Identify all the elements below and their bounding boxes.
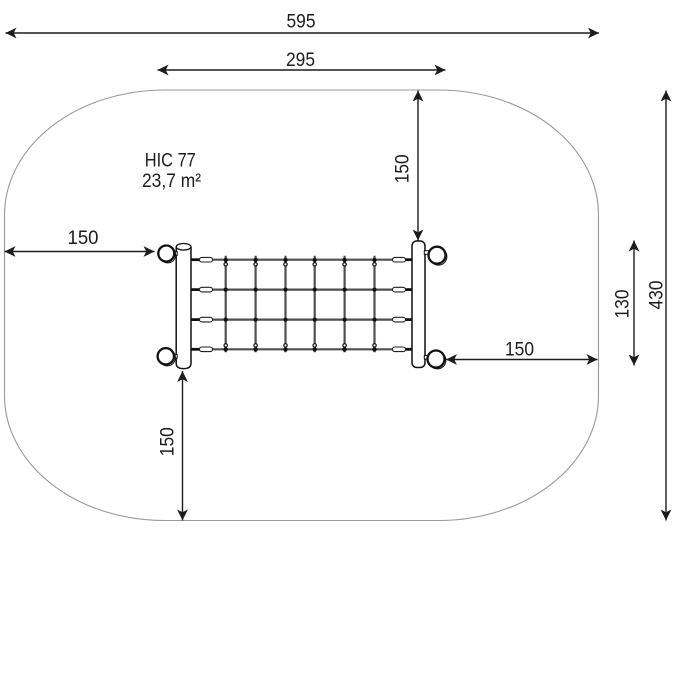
svg-text:595: 595 <box>287 11 316 32</box>
svg-text:295: 295 <box>286 50 315 71</box>
svg-text:150: 150 <box>392 154 413 183</box>
svg-text:150: 150 <box>505 339 534 360</box>
svg-text:150: 150 <box>68 228 99 249</box>
svg-text:150: 150 <box>157 427 178 456</box>
svg-text:HIC 77: HIC 77 <box>145 150 196 171</box>
svg-text:130: 130 <box>612 290 633 319</box>
svg-text:430: 430 <box>646 281 667 310</box>
svg-text:23,7 m²: 23,7 m² <box>142 171 201 192</box>
